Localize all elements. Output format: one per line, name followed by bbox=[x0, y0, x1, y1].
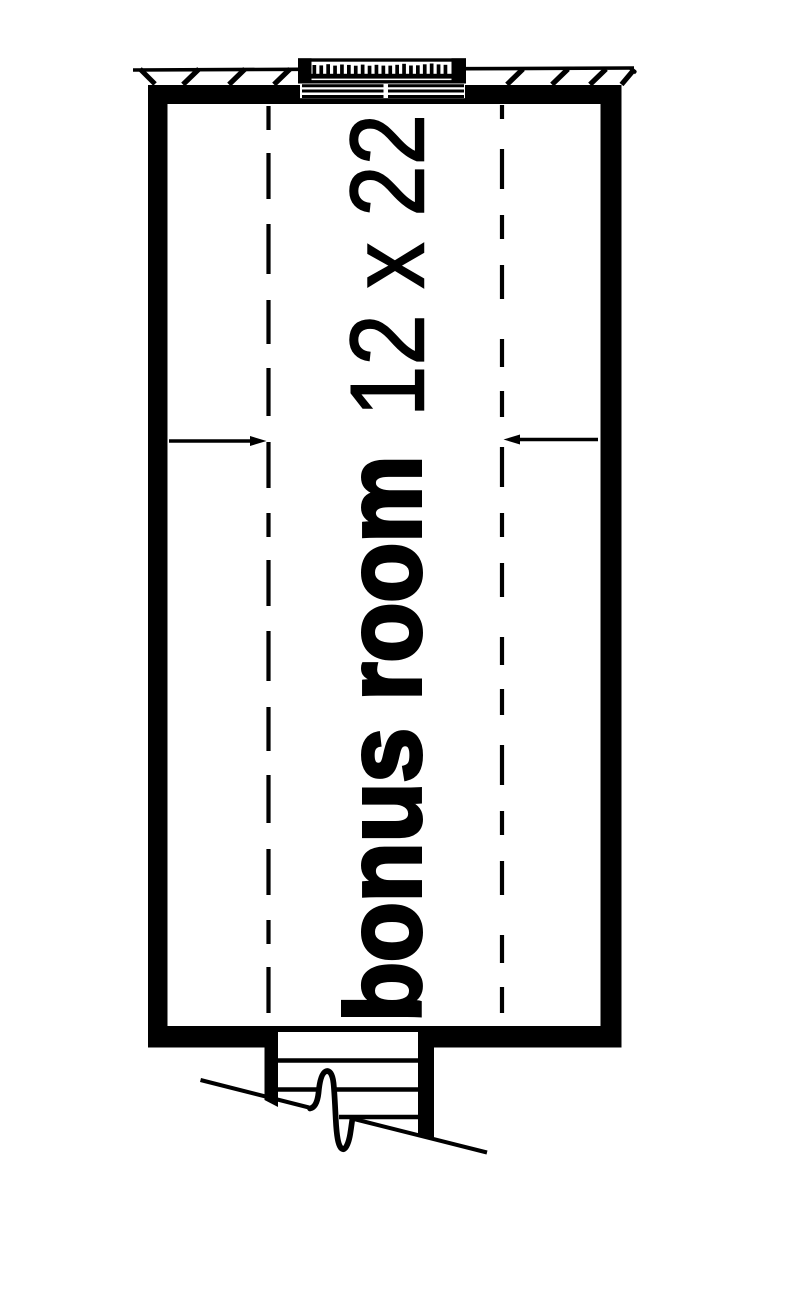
svg-text:bonus room: bonus room bbox=[324, 456, 442, 1022]
svg-text:12 x 22: 12 x 22 bbox=[328, 114, 446, 417]
